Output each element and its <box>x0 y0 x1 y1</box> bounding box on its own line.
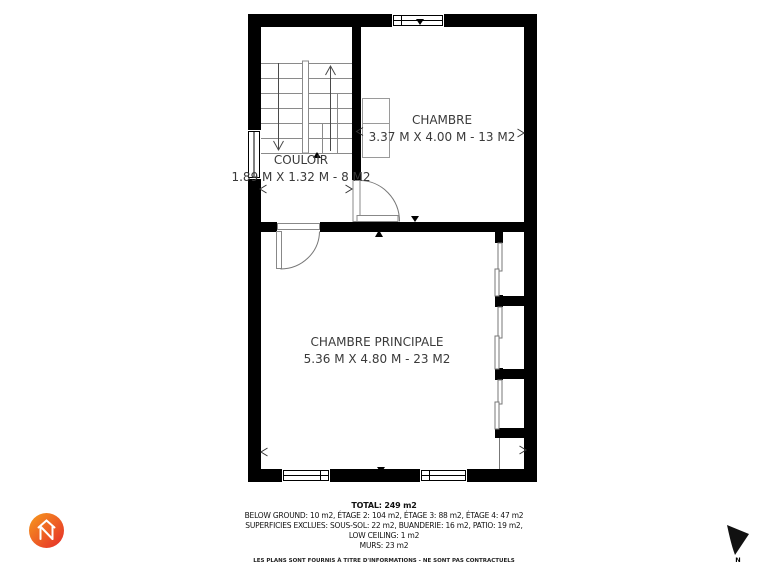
summary-disclaimer: LES PLANS SONT FOURNIS À TITRE D'INFORMA… <box>0 556 768 566</box>
door-leaf <box>277 232 282 269</box>
staircase <box>261 61 352 154</box>
wall-left <box>248 14 261 482</box>
closet-wall-stub <box>503 428 524 438</box>
room-name: CHAMBRE PRINCIPALE <box>287 334 467 351</box>
closet-wall-stub <box>503 296 524 306</box>
area-summary: TOTAL: 249 m2 BELOW GROUND: 10 m2, ÉTAGE… <box>0 501 768 566</box>
closet-wall-stub <box>495 232 503 243</box>
compass: N <box>718 518 758 570</box>
walls <box>248 14 537 482</box>
floor-plan-page: CHAMBRE 3.37 M X 4.00 M - 13 M2 COULOIR … <box>0 0 768 576</box>
closet-wall-stub <box>495 368 503 380</box>
brand-logo <box>28 512 65 549</box>
summary-walls: MURS: 23 m2 <box>0 541 768 551</box>
room-dimensions: 5.36 M X 4.80 M - 23 M2 <box>287 351 467 368</box>
window-bottom-left <box>284 471 329 481</box>
wall-right <box>524 14 537 482</box>
door-leaf <box>357 216 398 222</box>
closet-wall-stub <box>503 369 524 379</box>
floor-plan-drawing <box>0 0 768 576</box>
room-name: CHAMBRE <box>352 112 532 129</box>
summary-excluded: SUPERFICIES EXCLUES: SOUS-SOL: 22 m2, BU… <box>0 521 768 531</box>
wall-markers <box>313 19 424 473</box>
compass-north-label: N <box>718 556 758 564</box>
room-label-couloir: COULOIR 1.89 M X 1.32 M - 8 M2 <box>211 152 391 186</box>
room-dimensions: 1.89 M X 1.32 M - 8 M2 <box>211 169 391 186</box>
room-label-chambre: CHAMBRE 3.37 M X 4.00 M - 13 M2 <box>352 112 532 146</box>
room-dimensions: 3.37 M X 4.00 M - 13 M2 <box>352 129 532 146</box>
stair-handrail <box>303 61 309 153</box>
door-chambre <box>353 181 400 222</box>
room-label-chambre-principale: CHAMBRE PRINCIPALE 5.36 M X 4.80 M - 23 … <box>287 334 467 368</box>
door-frame <box>278 224 320 230</box>
summary-low-ceiling: LOW CEILING: 1 m2 <box>0 531 768 541</box>
window-bottom-right <box>422 471 466 481</box>
summary-total: TOTAL: 249 m2 <box>0 501 768 511</box>
closet-wall-stub <box>495 295 503 307</box>
house-n-logo-icon <box>28 512 65 549</box>
north-arrow-icon <box>718 518 758 558</box>
summary-areas: BELOW GROUND: 10 m2, ÉTAGE 2: 104 m2, ÉT… <box>0 511 768 521</box>
door-swing-arc <box>281 232 320 270</box>
room-name: COULOIR <box>211 152 391 169</box>
